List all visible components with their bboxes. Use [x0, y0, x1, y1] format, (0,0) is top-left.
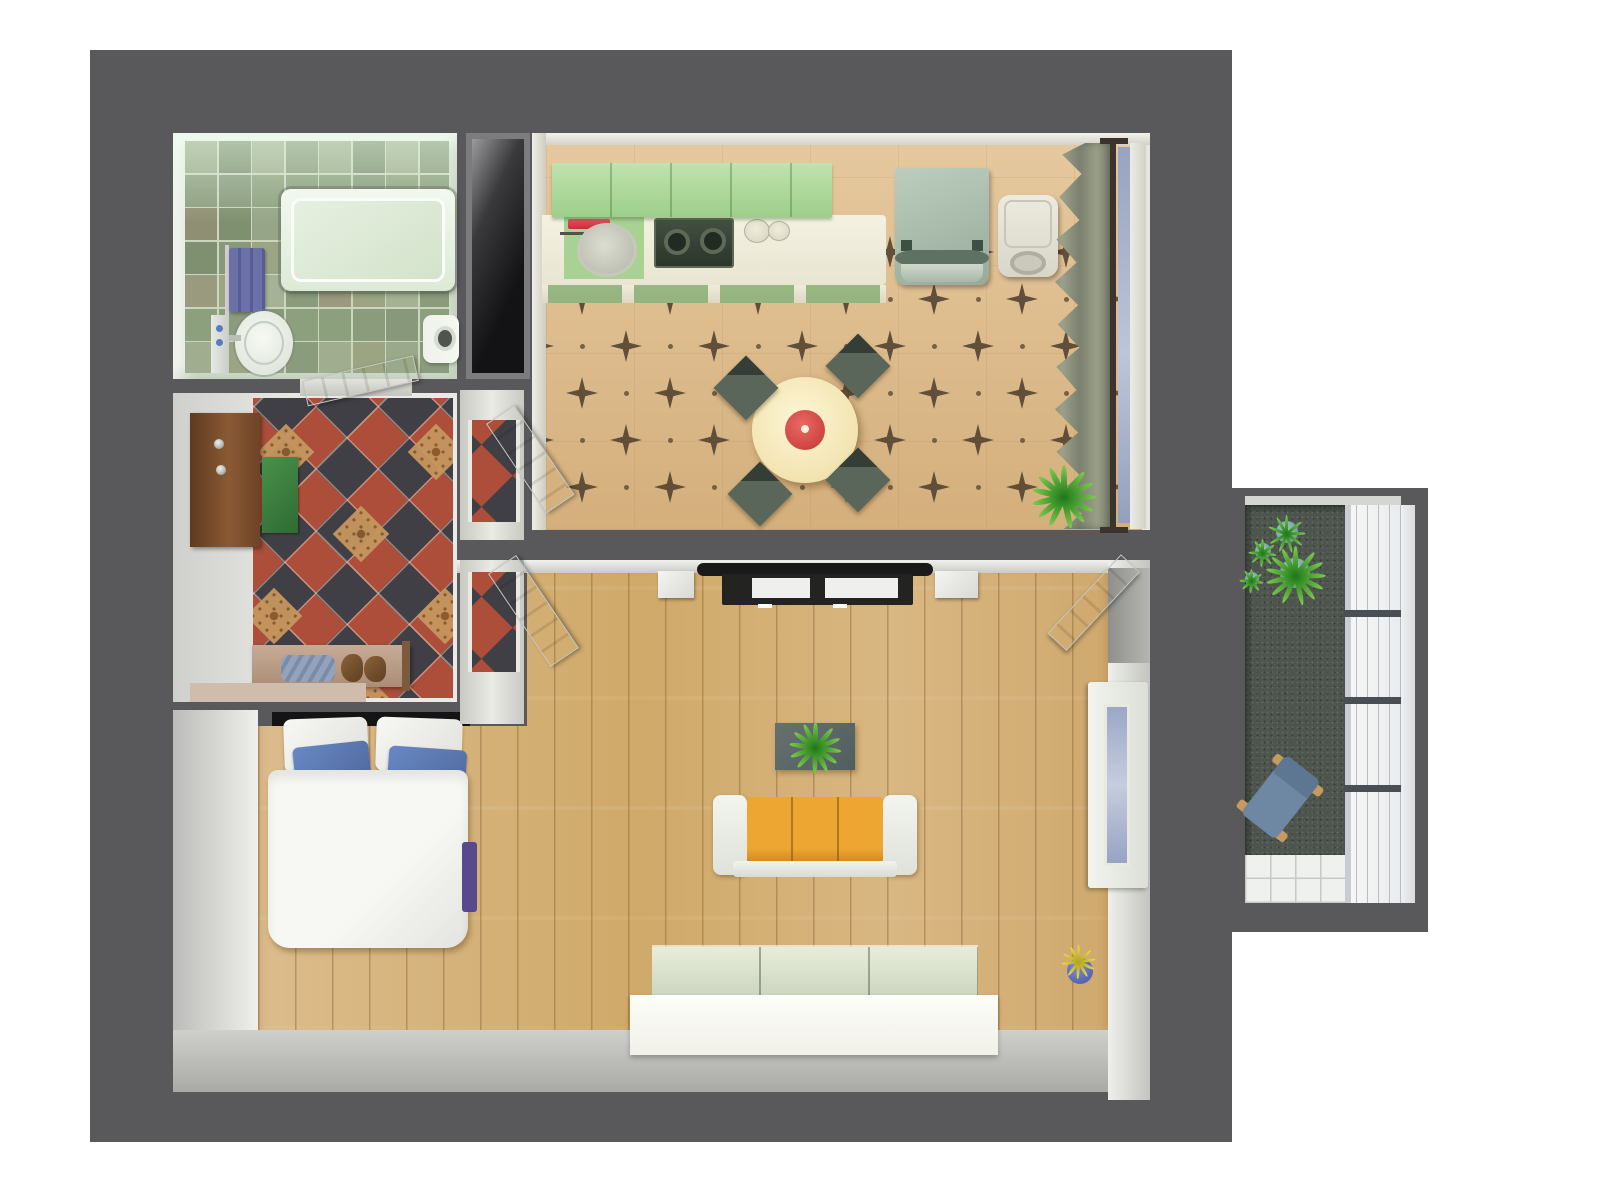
dot-motif	[1020, 344, 1025, 349]
dot-motif	[1064, 297, 1069, 302]
wall-face-left	[173, 710, 258, 1055]
dot-motif	[668, 344, 673, 349]
star-motif	[874, 424, 906, 456]
lowboard-foot	[758, 604, 772, 608]
toilet-bowl	[434, 326, 456, 351]
washer-lid	[1004, 200, 1052, 248]
star-motif	[786, 330, 818, 362]
red-bowl	[785, 410, 825, 450]
star-motif	[698, 424, 730, 456]
purple-towel	[229, 248, 265, 312]
kitchen-sink	[577, 223, 637, 277]
star-motif	[918, 283, 950, 315]
dot-motif	[932, 438, 937, 443]
star-motif	[546, 330, 554, 362]
dot-motif	[624, 391, 629, 396]
apartment-floorplan-render	[0, 0, 1600, 1200]
refrigerator	[895, 168, 989, 285]
dot-motif	[712, 485, 717, 490]
washing-machine	[998, 195, 1058, 277]
room-bathroom	[173, 133, 457, 379]
floor-tile	[353, 309, 385, 341]
wardrobe-top	[652, 947, 978, 997]
bed-duvet	[268, 770, 468, 948]
double-bed	[268, 712, 480, 954]
balcony-tile-strip	[1245, 855, 1345, 903]
shoe-bench	[252, 645, 410, 687]
dot-motif	[800, 485, 805, 490]
star-motif	[566, 471, 598, 503]
burner	[664, 229, 690, 255]
star-motif	[962, 330, 994, 362]
shaft-void	[472, 139, 524, 373]
balcony-outer-edge	[1401, 505, 1415, 903]
room-balcony	[1232, 488, 1428, 932]
star-motif	[654, 377, 686, 409]
plate	[744, 219, 770, 243]
installation-shaft	[466, 133, 530, 379]
star-motif	[1006, 471, 1038, 503]
stove-hob	[654, 218, 734, 268]
blue-cloth	[281, 655, 335, 682]
bed-runner-purple	[462, 842, 477, 912]
star-motif	[698, 330, 730, 362]
base-drawers	[542, 285, 886, 303]
glazing-frame	[1345, 505, 1351, 903]
dot-motif	[976, 391, 981, 396]
wall-face-top	[532, 133, 1150, 145]
bench-side-panel	[402, 641, 410, 691]
upper-cabinets	[552, 163, 832, 217]
floor-tile	[386, 309, 418, 341]
star-motif	[918, 377, 950, 409]
star-motif	[962, 424, 994, 456]
glazing-transom	[1345, 785, 1401, 792]
fridge-door-top	[901, 264, 983, 282]
curtain-rod-end	[1100, 138, 1128, 144]
room-kitchen-dining	[532, 133, 1150, 530]
curtain-rod	[1110, 141, 1116, 531]
floor-tile	[319, 309, 351, 341]
shoe	[364, 656, 386, 682]
basin-tap	[229, 335, 241, 341]
door-knob	[216, 465, 226, 475]
sofa	[713, 795, 917, 879]
green-doormat	[262, 457, 298, 533]
dot-motif	[580, 438, 585, 443]
lowboard-foot	[833, 604, 847, 608]
star-motif	[1006, 377, 1038, 409]
star-motif	[918, 471, 950, 503]
star-motif	[610, 424, 642, 456]
washer-drum	[1010, 251, 1046, 275]
floor-tile	[319, 342, 351, 373]
dot-motif	[580, 344, 585, 349]
dot-motif	[888, 485, 893, 490]
lowboard-shelf	[752, 578, 810, 598]
sofa-front-rail	[733, 861, 897, 877]
dot-motif	[756, 344, 761, 349]
door-knob	[214, 439, 224, 449]
bathtub	[281, 189, 455, 291]
mirror-shelf	[211, 315, 229, 373]
sofa-cushions	[747, 797, 883, 863]
dot-motif	[932, 344, 937, 349]
glazing-transom	[1345, 610, 1401, 617]
lowboard-shelf	[825, 578, 898, 598]
glazing-transom	[1345, 697, 1401, 704]
dot-motif	[976, 297, 981, 302]
curtain-rod-end	[1100, 527, 1128, 533]
towel-rail	[560, 232, 584, 235]
kitchen-window-glass	[1118, 147, 1130, 523]
washbasin	[235, 311, 293, 375]
kitchen-window-frame	[1130, 143, 1146, 529]
window-glass	[1104, 704, 1130, 866]
plate	[768, 221, 790, 241]
star-motif	[654, 471, 686, 503]
floor-tile	[185, 275, 217, 307]
burner	[700, 228, 726, 254]
star-motif	[566, 377, 598, 409]
runner-mat	[190, 683, 366, 702]
speaker-right	[935, 571, 978, 598]
dot-motif	[668, 438, 673, 443]
dot-motif	[624, 485, 629, 490]
dot-motif	[1064, 391, 1069, 396]
floor-tile	[185, 242, 217, 274]
dot-motif	[888, 297, 893, 302]
toilet	[423, 315, 459, 363]
balcony-glazing	[1345, 505, 1401, 903]
dot-motif	[1020, 438, 1025, 443]
speaker-left	[658, 571, 694, 598]
star-motif	[1006, 283, 1038, 315]
dot-motif	[976, 485, 981, 490]
living-room-window	[1088, 682, 1148, 888]
star-motif	[546, 424, 554, 456]
dot-motif	[888, 391, 893, 396]
shoe	[341, 654, 363, 682]
tv-lowboard	[722, 574, 913, 605]
star-motif	[610, 330, 642, 362]
bathtub-basin	[291, 198, 445, 282]
wardrobe-front	[630, 995, 998, 1055]
basin-bowl	[244, 321, 284, 365]
entrance-door	[190, 413, 260, 547]
room-hallway	[173, 393, 457, 702]
